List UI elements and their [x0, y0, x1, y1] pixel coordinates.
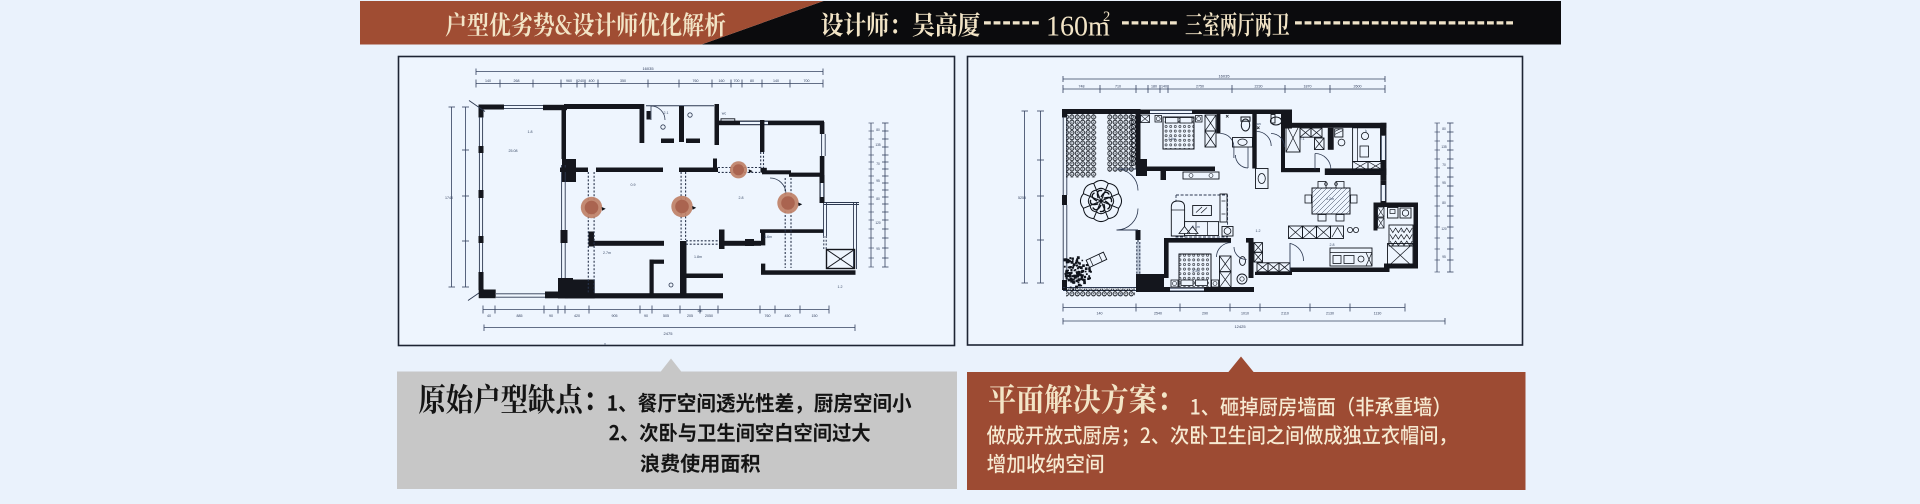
svg-text:2.8: 2.8 [1330, 243, 1335, 247]
svg-text:140: 140 [485, 79, 491, 83]
svg-text:95: 95 [1442, 181, 1446, 185]
svg-text:1.2: 1.2 [838, 285, 843, 289]
svg-text:1.2: 1.2 [1256, 229, 1261, 233]
svg-text:2540: 2540 [1154, 312, 1162, 316]
svg-text:205: 205 [687, 314, 693, 318]
svg-text:u: u [1401, 229, 1403, 233]
svg-text:3.6m: 3.6m [1168, 137, 1176, 141]
svg-text:1010: 1010 [1241, 312, 1249, 316]
svg-text:70: 70 [876, 162, 880, 166]
svg-text:80: 80 [750, 79, 754, 83]
svg-text:90: 90 [549, 314, 553, 318]
svg-text:700: 700 [804, 79, 810, 83]
svg-text:760: 760 [693, 79, 699, 83]
svg-text:350: 350 [620, 79, 626, 83]
svg-text:2.1: 2.1 [664, 111, 669, 115]
svg-text:x: x [604, 342, 606, 346]
svg-text:2230: 2230 [1255, 84, 1263, 88]
svg-text:95: 95 [876, 247, 880, 251]
svg-text:268: 268 [514, 79, 520, 83]
svg-text:505: 505 [663, 314, 669, 318]
svg-text:140: 140 [1161, 84, 1167, 88]
svg-text:3.6m: 3.6m [764, 235, 772, 239]
svg-text:290: 290 [1202, 312, 1208, 316]
svg-text:240: 240 [578, 79, 584, 83]
svg-text:1870: 1870 [1304, 84, 1312, 88]
svg-text:1.8m: 1.8m [694, 255, 702, 259]
svg-text:1.5: 1.5 [1118, 293, 1123, 297]
svg-text:2600: 2600 [1354, 84, 1362, 88]
svg-text:140: 140 [773, 79, 779, 83]
svg-text:748: 748 [1079, 84, 1085, 88]
svg-text:25.08: 25.08 [509, 149, 518, 153]
svg-text:2130: 2130 [1326, 312, 1334, 316]
svg-text:70: 70 [1442, 163, 1446, 167]
svg-text:95: 95 [876, 179, 880, 183]
svg-text:wc: wc [1257, 122, 1262, 126]
svg-text:1.8: 1.8 [528, 130, 533, 134]
svg-text:2.7m: 2.7m [603, 251, 611, 255]
svg-text:120: 120 [1441, 227, 1447, 231]
svg-text:90: 90 [644, 314, 648, 318]
svg-text:1740: 1740 [445, 196, 453, 200]
svg-text:2.1: 2.1 [1300, 137, 1305, 141]
svg-text:16035: 16035 [1218, 74, 1230, 79]
svg-text:3.3m: 3.3m [1192, 269, 1200, 273]
svg-text:2.8: 2.8 [739, 196, 744, 200]
svg-text:k: k [1365, 129, 1367, 133]
svg-text:lab: lab [698, 309, 703, 313]
svg-text:140: 140 [1097, 312, 1103, 316]
svg-text:wc: wc [722, 112, 727, 116]
svg-text:5255: 5255 [1018, 196, 1026, 200]
svg-text:400: 400 [589, 79, 595, 83]
svg-text:760: 760 [765, 314, 771, 318]
svg-text:710: 710 [1115, 84, 1121, 88]
svg-text:120: 120 [875, 221, 881, 225]
svg-text:150: 150 [812, 314, 818, 318]
svg-text:700: 700 [734, 79, 740, 83]
svg-text:4.2m: 4.2m [1326, 197, 1334, 201]
svg-text:2750: 2750 [1196, 84, 1204, 88]
svg-text:160: 160 [719, 79, 725, 83]
svg-text:2110: 2110 [1281, 312, 1289, 316]
svg-text:0.9: 0.9 [631, 183, 636, 187]
svg-text:16035: 16035 [642, 66, 654, 71]
svg-text:80: 80 [876, 197, 880, 201]
svg-text:450: 450 [785, 314, 791, 318]
svg-text:2050: 2050 [705, 314, 713, 318]
svg-text:135: 135 [875, 143, 881, 147]
svg-text:2475: 2475 [664, 331, 674, 336]
svg-text:135: 135 [1441, 145, 1447, 149]
svg-text:1130: 1130 [1374, 312, 1382, 316]
svg-text:960: 960 [566, 79, 572, 83]
svg-text:80: 80 [1442, 201, 1446, 205]
svg-text:180: 180 [1151, 84, 1157, 88]
svg-text:40: 40 [487, 314, 491, 318]
svg-text:885: 885 [517, 314, 523, 318]
svg-text:420: 420 [574, 314, 580, 318]
svg-text:80: 80 [876, 128, 880, 132]
svg-text:12425: 12425 [1234, 324, 1246, 329]
svg-text:5.1m: 5.1m [1192, 225, 1200, 229]
svg-text:95: 95 [1442, 255, 1446, 259]
svg-text:80: 80 [1442, 127, 1446, 131]
svg-text:160m: 160m [1046, 12, 1110, 43]
svg-text:2: 2 [1103, 9, 1110, 25]
svg-text:905: 905 [612, 314, 618, 318]
